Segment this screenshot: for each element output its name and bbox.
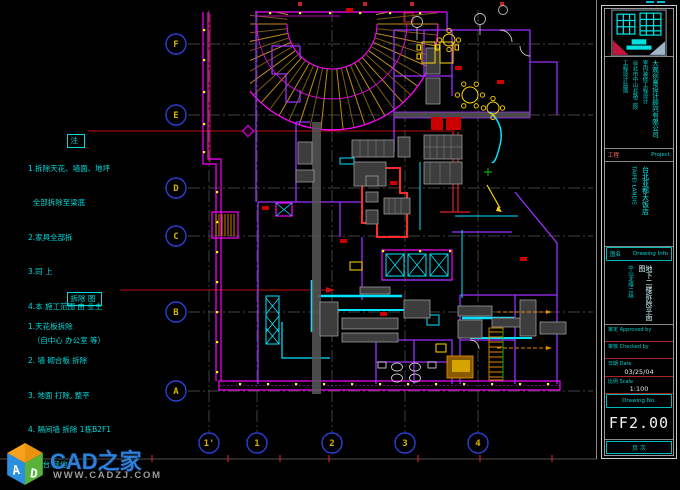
notes-1-header: 注 (67, 134, 86, 149)
company-line: 室内装修工程设计 (641, 60, 648, 147)
svg-text:D: D (173, 184, 179, 194)
grid-bubble: F (166, 34, 186, 54)
title-block-inner: 大观创意设计顾问有限公司 室内装修工程设计 台北市中山北路二段 工程设计监造 工… (604, 8, 674, 456)
company-logo-icon (605, 9, 673, 57)
svg-text:B: B (173, 308, 179, 318)
drawing-subtitle: 中山北路二段 (626, 265, 633, 324)
grid-bubble: 2 (322, 433, 342, 453)
grid-lines (188, 10, 593, 432)
note-line: 2.家具全部拆 (28, 232, 110, 244)
drawing-no-label: Drawing No. (622, 398, 656, 404)
sign-row-scale: 比例 Scale 1:100 (605, 377, 673, 394)
company-logo (605, 9, 673, 57)
title-block-footer: 页 次 (606, 441, 672, 454)
note-line: 1.拆除天花、墙面、地坪 (28, 163, 110, 175)
note-line: 全部拆除至梁底 (28, 197, 110, 209)
title-block: 大观创意设计顾问有限公司 室内装修工程设计 台北市中山北路二段 工程设计监造 工… (601, 5, 677, 459)
company-line: 台北市中山北路二段 (631, 60, 638, 147)
project-name-en: TAIPEI LANDIS (630, 166, 637, 246)
drawing-info-row: 图名 Drawing Info (606, 247, 672, 261)
note-line: 4. 隔间墙 拆除 1栋B2F1 (28, 424, 111, 436)
grid-bubbles-rows: F E D C B A (166, 34, 186, 401)
svg-text:A: A (173, 387, 179, 397)
sign-label: 审定 Approved by (608, 326, 670, 333)
project-name-area: 台北亚都大饭店 TAIPEI LANDIS (605, 162, 673, 247)
note-line: 2. 墙 砌合板 拆除 (28, 355, 111, 367)
sign-label: 比例 Scale (608, 378, 670, 385)
sign-row-checked: 审核 Checked by (605, 342, 673, 359)
drawing-title: 地下二楼拆除平面图 (638, 265, 652, 324)
notes-2-header: 拆除 图 (67, 292, 103, 307)
sign-row-approved: 审定 Approved by (605, 325, 673, 342)
company-info: 大观创意设计顾问有限公司 室内装修工程设计 台北市中山北路二段 工程设计监造 (605, 57, 673, 148)
cadzj-watermark: A D CAD之家 WWW.CADZJ.COM (4, 442, 304, 488)
svg-text:C: C (173, 232, 178, 242)
cad-drawing-sheet: F E D C B A 1' 1 2 3 4 (0, 0, 680, 490)
drawing-info-label-en: Drawing Info (633, 251, 668, 257)
drawing-no-header: Drawing No. (606, 394, 672, 408)
grid-bubble: 4 (468, 433, 488, 453)
equipment-blocks (296, 48, 566, 394)
cube-letter-d: D (29, 465, 39, 481)
grid-bubble: D (166, 178, 186, 198)
company-line: 工程设计监造 (621, 60, 628, 147)
drawing-info-label: 图名 (610, 250, 621, 258)
drawing-title-area: 地下二楼拆除平面图 中山北路二段 (605, 261, 673, 325)
project-row-header: 工程 Project (605, 149, 673, 162)
drawing-number: FF2.00 (605, 408, 673, 439)
project-label: 工程 (608, 151, 619, 159)
sign-value: 03/25/04 (608, 369, 670, 376)
grid-bubble: E (166, 105, 186, 125)
cadzj-cube-icon: A D (4, 442, 46, 486)
svg-text:F: F (173, 40, 178, 50)
svg-text:2: 2 (329, 439, 334, 449)
grid-bubble: 3 (395, 433, 415, 453)
project-name: 台北亚都大饭店 (642, 166, 649, 246)
sign-value: 1:100 (608, 386, 670, 393)
svg-text:E: E (173, 111, 178, 121)
grid-bubble: B (166, 302, 186, 322)
sign-label: 审核 Checked by (608, 343, 670, 350)
sheet-right-divider (596, 0, 597, 459)
note-line: 1.天花板拆除 (28, 321, 111, 333)
svg-text:3: 3 (402, 439, 407, 449)
sign-row-date: 日期 Date 03/25/04 (605, 359, 673, 376)
note-line: 3. 地面 打除, 整平 (28, 390, 111, 402)
project-label-en: Project (651, 152, 670, 158)
grid-bubble: C (166, 226, 186, 246)
grid-bubble: A (166, 381, 186, 401)
svg-text:4: 4 (475, 439, 481, 449)
sign-label: 日期 Date (608, 360, 670, 367)
company-line: 大观创意设计顾问有限公司 (651, 60, 658, 147)
watermark-url: WWW.CADZJ.COM (53, 470, 162, 481)
note-line: 3.同 上 (28, 266, 110, 278)
